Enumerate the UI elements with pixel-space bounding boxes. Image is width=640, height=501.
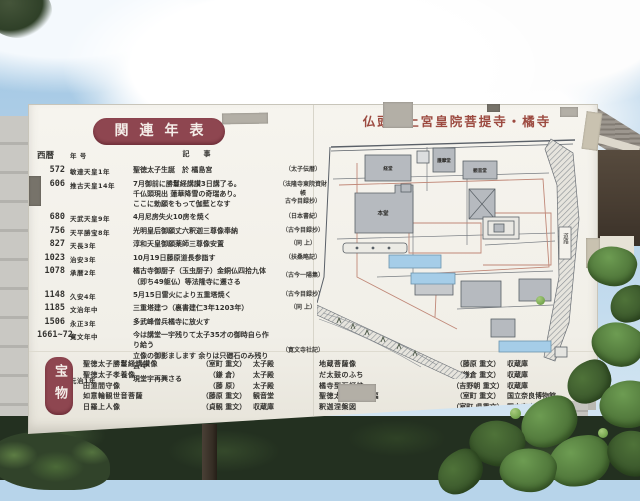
treasure-era: 貞観 重文 <box>197 402 251 413</box>
chronology-row: 1506 永正3年 多武峰僧兵橘寺に放火す <box>37 317 329 328</box>
row-era: 寛文年中 <box>70 330 130 341</box>
label-hondo: 本堂 <box>377 209 389 217</box>
row-year: 1185 <box>37 303 67 313</box>
row-era: 天平勝宝8年 <box>70 226 130 237</box>
chronology-row: 572 敏達天皇1年 聖徳太子生誕 於 橘島宮 太子伝暦 <box>37 165 329 176</box>
sign-post <box>202 424 217 480</box>
row-year: 1506 <box>37 317 67 327</box>
row-event: 橘古寺御厨子（玉虫厨子）金銅仏四拾九体 （即ち49躯仏）等法隆寺に遷さる <box>133 266 274 287</box>
row-event: 聖徳太子生誕 於 橘島宮 <box>133 165 274 175</box>
label-gomado: 護摩堂 <box>437 157 451 164</box>
temple-grounds-map: 道路 経堂 護摩堂 観音堂 本堂 <box>317 127 597 379</box>
corridor <box>343 243 407 253</box>
header-event: 記事 <box>133 149 274 159</box>
treasure-item: 如意輪観世音菩薩 藤原 重文 観音堂 <box>83 391 311 402</box>
row-era: 承暦2年 <box>70 266 130 277</box>
treasure-location: 太子殿 <box>253 370 311 381</box>
chronology-row: 1148 久安4年 5月15日雷火により五重塔焼く 古今目録抄 <box>37 290 329 301</box>
row-era: 推古天皇14年 <box>70 179 130 190</box>
header-year: 西暦 <box>37 149 67 161</box>
temple-building-wall <box>596 150 640 246</box>
row-year: 606 <box>37 179 67 189</box>
smudge <box>29 176 41 206</box>
treasure-location: 太子殿 <box>253 381 311 392</box>
chronology-row: 1185 文治年中 三重塔建つ（裏書建仁3年1203年） 同 上 <box>37 303 329 314</box>
treasure-name: 日羅上人像 <box>83 402 195 413</box>
treasure-era: 藤原 重文 <box>197 391 251 402</box>
chronology-row: 827 天長3年 淳和天皇御願薬師三尊像安置 同 上 <box>37 239 329 250</box>
header-era: 年 号 <box>70 149 130 160</box>
concrete-fence <box>0 116 30 438</box>
row-year: 1078 <box>37 266 67 276</box>
treasure-location: 観音堂 <box>253 391 311 402</box>
treasure-name: 田道間守像 <box>83 381 195 392</box>
road-label-box: 道路 <box>559 227 571 259</box>
temple-sign-board: 関連年表 西暦 年 号 記事 572 敏達天皇1年 聖徳太子生誕 於 橘島宮 太… <box>28 104 598 434</box>
row-event: 5月15日雷火により五重塔焼く <box>133 290 274 300</box>
treasure-item: 聖徳太子勝鬘経講讃像 室町 重文 太子殿 <box>83 359 311 370</box>
chronology-table: 西暦 年 号 記事 572 敏達天皇1年 聖徳太子生誕 於 橘島宮 太子伝暦 6… <box>37 149 329 388</box>
row-year: 827 <box>37 239 67 249</box>
green-fruit <box>510 408 521 419</box>
row-event: 10月19日藤原道長参詣す <box>133 253 274 263</box>
label-kannondo: 観音堂 <box>473 167 487 174</box>
row-event: 7月御前に勝鬘経講讃3日講了る。 千仏頭現出 蓮華降雪の奇瑞あり。 ここに勅願を… <box>133 179 274 210</box>
tape-patch <box>383 102 413 128</box>
treasure-item: 田道間守像 藤 原 太子殿 <box>83 381 311 392</box>
row-era: 文治年中 <box>70 303 130 314</box>
temple-map-panel: 仏頭山上宮皇院菩提寺・橘寺 <box>315 105 599 405</box>
chronology-row: 606 推古天皇14年 7月御前に勝鬘経講讃3日講了る。 千仏頭現出 蓮華降雪の… <box>37 179 329 210</box>
green-fruit <box>536 296 545 305</box>
chronology-header: 西暦 年 号 記事 <box>37 149 329 161</box>
row-event: 三重塔建つ（裏書建仁3年1203年） <box>133 303 274 313</box>
treasure-location: 太子殿 <box>253 359 311 370</box>
row-year: 1661~72 <box>37 330 67 340</box>
row-year: 1148 <box>37 290 67 300</box>
chronology-row: 680 天武天皇9年 4月尼房失火10房を焼く 日本書紀 <box>37 212 329 223</box>
row-year: 572 <box>37 165 67 175</box>
treasure-era: 藤 原 <box>197 381 251 392</box>
row-event: 淳和天皇御願薬師三尊像安置 <box>133 239 274 249</box>
row-event: 多武峰僧兵橘寺に放火す <box>133 317 274 327</box>
tape-patch <box>338 384 376 402</box>
chronology-row: 756 天平勝宝8年 光明皇后御願丈六釈迦三尊像奉納 古今目録抄 <box>37 226 329 237</box>
smudge <box>487 104 500 112</box>
tape-patch <box>560 107 578 117</box>
pagoda-site <box>483 217 519 239</box>
treasure-name: 如意輪観世音菩薩 <box>83 391 195 402</box>
label-kyodo: 経堂 <box>382 165 393 172</box>
treasure-name: 聖徳太子勝鬘経講讃像 <box>83 359 195 370</box>
row-year: 756 <box>37 226 67 236</box>
row-year: 1023 <box>37 253 67 263</box>
row-event: 光明皇后御願丈六釈迦三尊像奉納 <box>133 226 274 236</box>
chronology-title-plate: 関連年表 <box>93 118 225 145</box>
treasure-era: 鎌 倉 <box>197 370 251 381</box>
treasure-era: 室町 重文 <box>197 359 251 370</box>
treasure-list-left: 聖徳太子勝鬘経講讃像 室町 重文 太子殿 聖徳太子孝養像 鎌 倉 太子殿 田道間… <box>83 359 311 413</box>
chronology-row: 1078 承暦2年 橘古寺御厨子（玉虫厨子）金銅仏四拾九体 （即ち49躯仏）等法… <box>37 266 329 287</box>
row-era: 久安4年 <box>70 290 130 301</box>
row-era: 天長3年 <box>70 239 130 250</box>
building <box>491 319 515 337</box>
road-label: 道路 <box>562 232 569 246</box>
treasure-item: 聖徳太子孝養像 鎌 倉 太子殿 <box>83 370 311 381</box>
row-era: 永正3年 <box>70 317 130 328</box>
building <box>461 281 501 307</box>
treasure-name: 聖徳太子孝養像 <box>83 370 195 381</box>
row-era: 敏達天皇1年 <box>70 165 130 176</box>
building <box>519 279 551 301</box>
treasure-location: 収蔵庫 <box>253 402 311 413</box>
treasure-title-plate: 宝物 <box>45 357 73 415</box>
chronology-row: 1023 治安3年 10月19日藤原道長参詣す 扶桑略記 <box>37 253 329 264</box>
green-fruit <box>598 428 608 438</box>
treasure-item: 日羅上人像 貞観 重文 収蔵庫 <box>83 402 311 413</box>
row-event: 4月尼房失火10房を焼く <box>133 212 274 222</box>
row-era: 治安3年 <box>70 253 130 264</box>
row-year: 680 <box>37 212 67 222</box>
row-era: 天武天皇9年 <box>70 212 130 223</box>
tape-patch <box>222 113 268 125</box>
